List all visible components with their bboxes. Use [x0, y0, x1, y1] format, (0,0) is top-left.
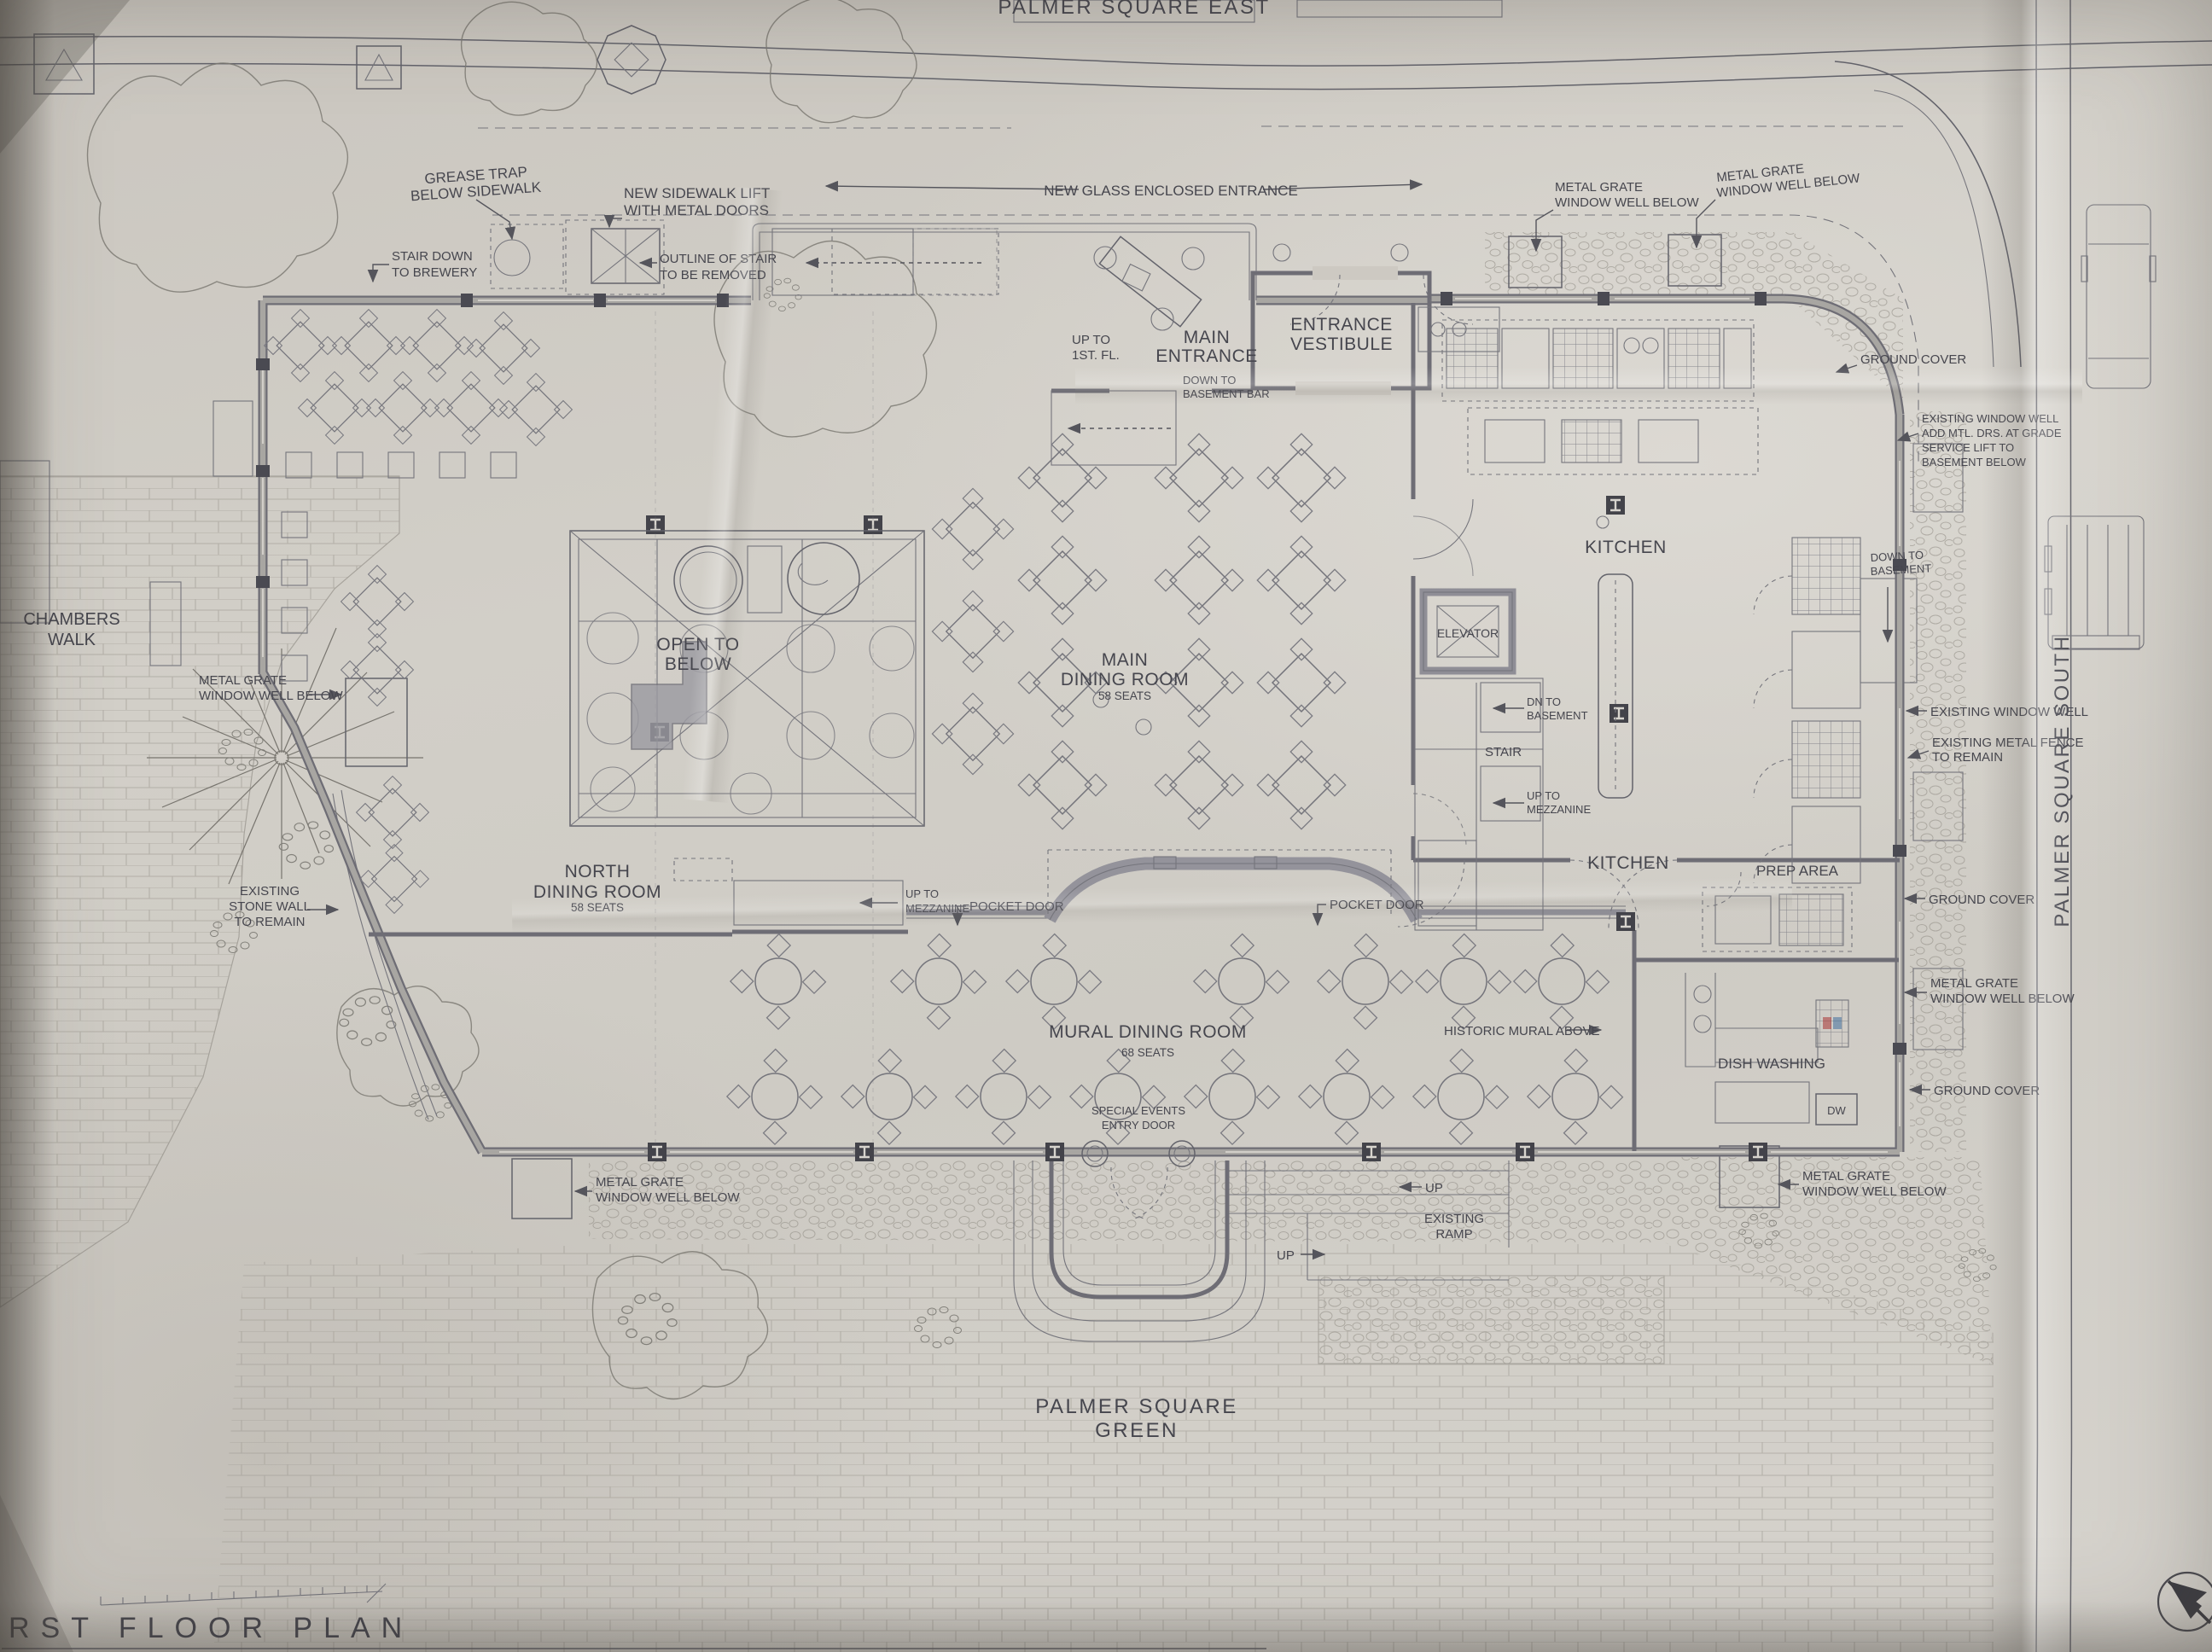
planter-octagon: [597, 26, 666, 94]
street-chambers-walk-2: WALK: [48, 631, 96, 649]
ann-metal-grate-bl: METAL GRATE: [596, 1175, 684, 1190]
ann-special-events-2: ENTRY DOOR: [1102, 1119, 1175, 1131]
room-entrance-vestibule: ENTRANCE: [1290, 315, 1393, 334]
ann-historic-mural: HISTORIC MURAL ABOVE: [1444, 1024, 1600, 1038]
room-north-dining: NORTH: [565, 862, 631, 881]
exterior-stair-down-to-basement: [1860, 579, 1917, 683]
ann-exist-stone-2: STONE WALL: [229, 899, 311, 914]
ann-metal-grate-left: METAL GRATE: [199, 673, 287, 688]
site-paving: [0, 232, 1994, 1652]
room-main-dining-seats: 58 SEATS: [1098, 689, 1151, 702]
photo-shadow-top-left: [0, 0, 393, 341]
photo-shadow-left: [0, 0, 55, 1652]
sidewalk-lift: [566, 220, 664, 294]
ann-metal-grate-br: METAL GRATE: [1802, 1169, 1890, 1184]
room-elevator: ELEVATOR: [1437, 626, 1499, 640]
ann-metal-grate-top1-2: WINDOW WELL BELOW: [1555, 195, 1699, 210]
room-main-entrance: MAIN: [1184, 328, 1231, 347]
ann-up-mezz-stair-2: MEZZANINE: [1527, 803, 1591, 816]
ann-up-1: UP: [1425, 1181, 1443, 1195]
room-mural-dining: MURAL DINING ROOM: [1049, 1022, 1247, 1042]
room-kitchen-upper: KITCHEN: [1585, 538, 1667, 557]
truck-top: [2081, 205, 2156, 388]
ann-special-events: SPECIAL EVENTS: [1091, 1104, 1185, 1117]
paper-crease-2: [1075, 367, 2082, 404]
room-main-dining: MAIN: [1102, 650, 1149, 670]
ann-metal-grate-br-2: WINDOW WELL BELOW: [1802, 1184, 1947, 1199]
ann-up-mezz-stair: UP TO: [1527, 789, 1560, 802]
ann-stair-brewery-2: TO BREWERY: [392, 265, 477, 280]
ann-metal-grate-bl-2: WINDOW WELL BELOW: [596, 1190, 740, 1205]
ann-up-1st: UP TO: [1072, 333, 1110, 347]
room-mural-dining-seats: 68 SEATS: [1121, 1046, 1174, 1059]
ann-up-1st-2: 1ST. FL.: [1072, 348, 1120, 363]
dishwashing-equipment: [1685, 973, 1857, 1125]
ann-existing-ramp: EXISTING: [1424, 1212, 1484, 1226]
ann-glass-entrance: NEW GLASS ENCLOSED ENTRANCE: [1044, 183, 1298, 199]
glass-enclosure: [753, 224, 1256, 300]
ann-metal-grate-left-2: WINDOW WELL BELOW: [199, 689, 343, 703]
paper-fold-right: [1982, 0, 2075, 1652]
ann-dn-basement: DN TO: [1527, 695, 1561, 708]
room-entrance-vestibule-2: VESTIBULE: [1290, 334, 1393, 354]
ann-ground-cover-1: GROUND COVER: [1860, 352, 1966, 367]
room-dw: DW: [1827, 1104, 1846, 1117]
floor-plan-photo: { "sheet": { "title": "RST FLOOR PLAN" }…: [0, 0, 2212, 1652]
room-stair: STAIR: [1485, 745, 1522, 759]
window-well-grate-left-upper: [213, 401, 253, 476]
grease-trap: [491, 224, 563, 288]
room-main-dining-2: DINING ROOM: [1061, 670, 1189, 689]
room-kitchen-lower: KITCHEN: [1587, 853, 1669, 873]
street-palmer-square-green: PALMER SQUARE: [1035, 1395, 1237, 1418]
ann-metal-grate-top1: METAL GRATE: [1555, 180, 1643, 195]
main-dining-tables: [932, 433, 1345, 829]
room-dish-washing: DISH WASHING: [1718, 1056, 1825, 1072]
ann-existing-ramp-2: RAMP: [1435, 1227, 1472, 1242]
ann-exist-stone: EXISTING: [240, 884, 300, 899]
ann-up-2: UP: [1277, 1248, 1295, 1263]
street-palmer-square-green-2: GREEN: [1095, 1419, 1179, 1442]
ann-stair-brewery: STAIR DOWN: [392, 249, 473, 264]
ann-dn-basement-2: BASEMENT: [1527, 709, 1588, 722]
ann-exist-stone-3: TO REMAIN: [234, 915, 305, 929]
room-main-entrance-2: ENTRANCE: [1155, 346, 1258, 366]
street-palmer-square-east: PALMER SQUARE EAST: [998, 0, 1270, 19]
window-well-grate-west: [346, 678, 407, 766]
photo-shadow-bottom: [0, 1601, 2212, 1652]
window-well-grate-south-west: [512, 1159, 572, 1219]
